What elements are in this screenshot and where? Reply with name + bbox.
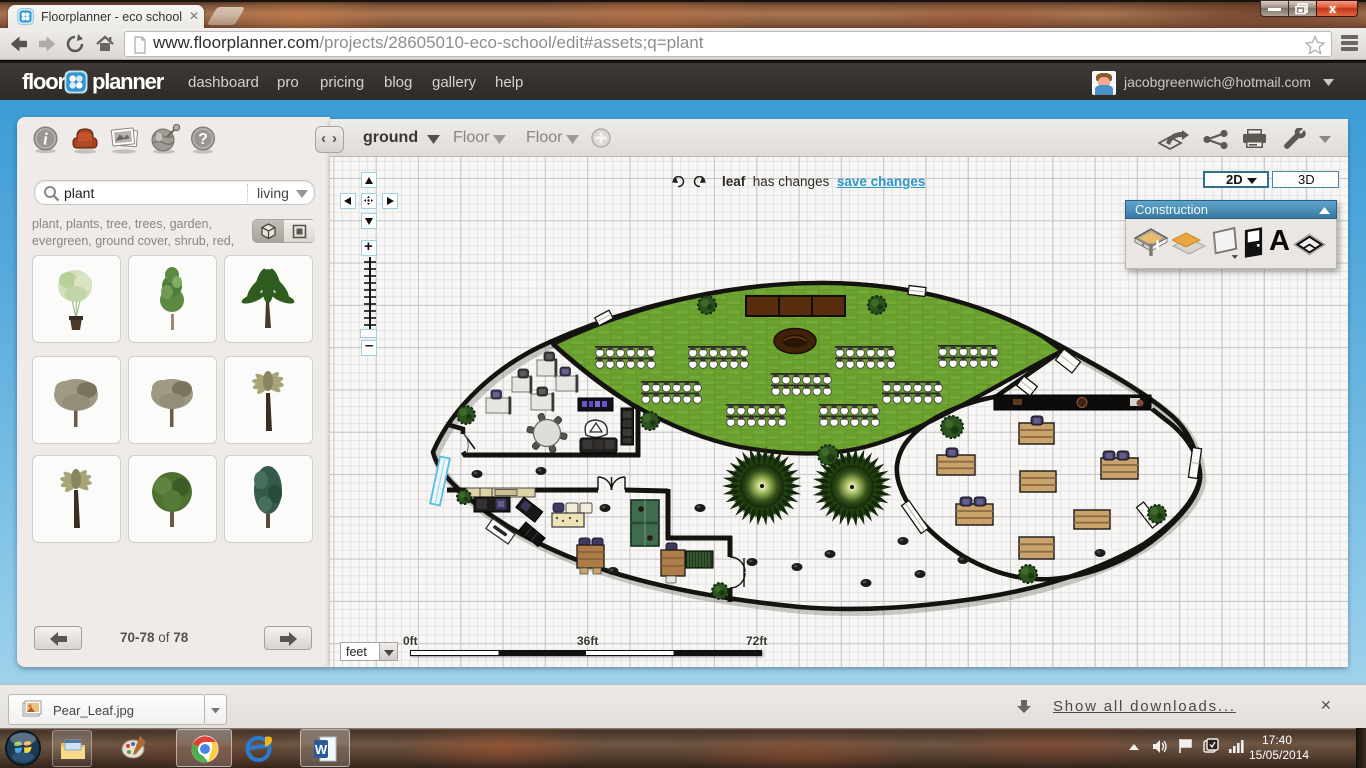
svg-text:?: ? (198, 131, 208, 148)
svg-text:i: i (43, 130, 48, 149)
svg-text:W: W (315, 742, 328, 757)
